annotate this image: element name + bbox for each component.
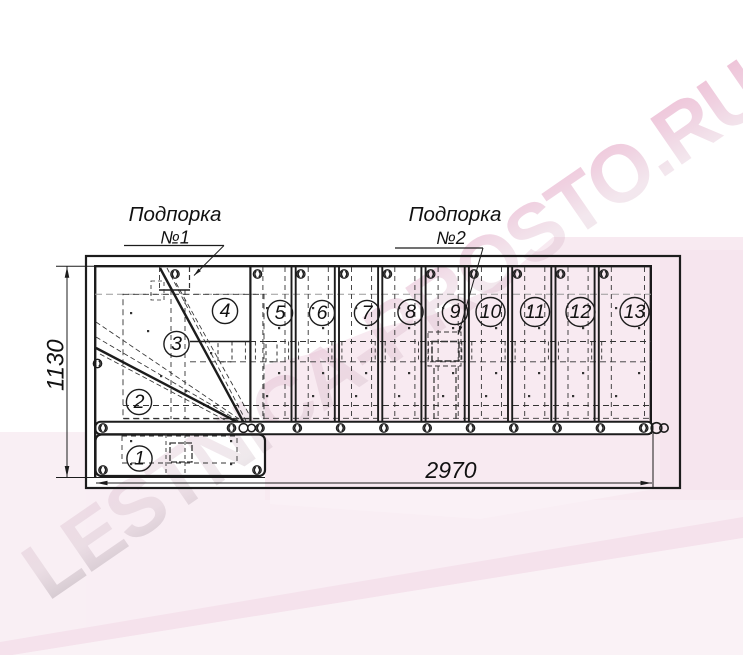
svg-text:4: 4 [220, 300, 231, 322]
svg-text:9: 9 [450, 301, 461, 323]
svg-text:6: 6 [317, 302, 328, 324]
svg-text:Подпорка: Подпорка [129, 203, 222, 226]
svg-text:11: 11 [525, 301, 545, 323]
svg-text:Подпорка: Подпорка [409, 203, 502, 226]
svg-text:1: 1 [134, 448, 145, 470]
svg-text:3: 3 [171, 333, 182, 355]
svg-text:№1: №1 [160, 228, 190, 248]
svg-text:10: 10 [480, 301, 502, 323]
svg-text:7: 7 [362, 302, 374, 324]
svg-text:1130: 1130 [43, 339, 70, 391]
svg-text:2970: 2970 [424, 457, 476, 483]
svg-text:5: 5 [275, 302, 286, 324]
svg-text:№2: №2 [436, 228, 466, 248]
svg-text:8: 8 [405, 301, 416, 323]
svg-text:13: 13 [624, 301, 646, 323]
svg-text:2: 2 [133, 391, 145, 413]
svg-text:12: 12 [570, 301, 592, 323]
